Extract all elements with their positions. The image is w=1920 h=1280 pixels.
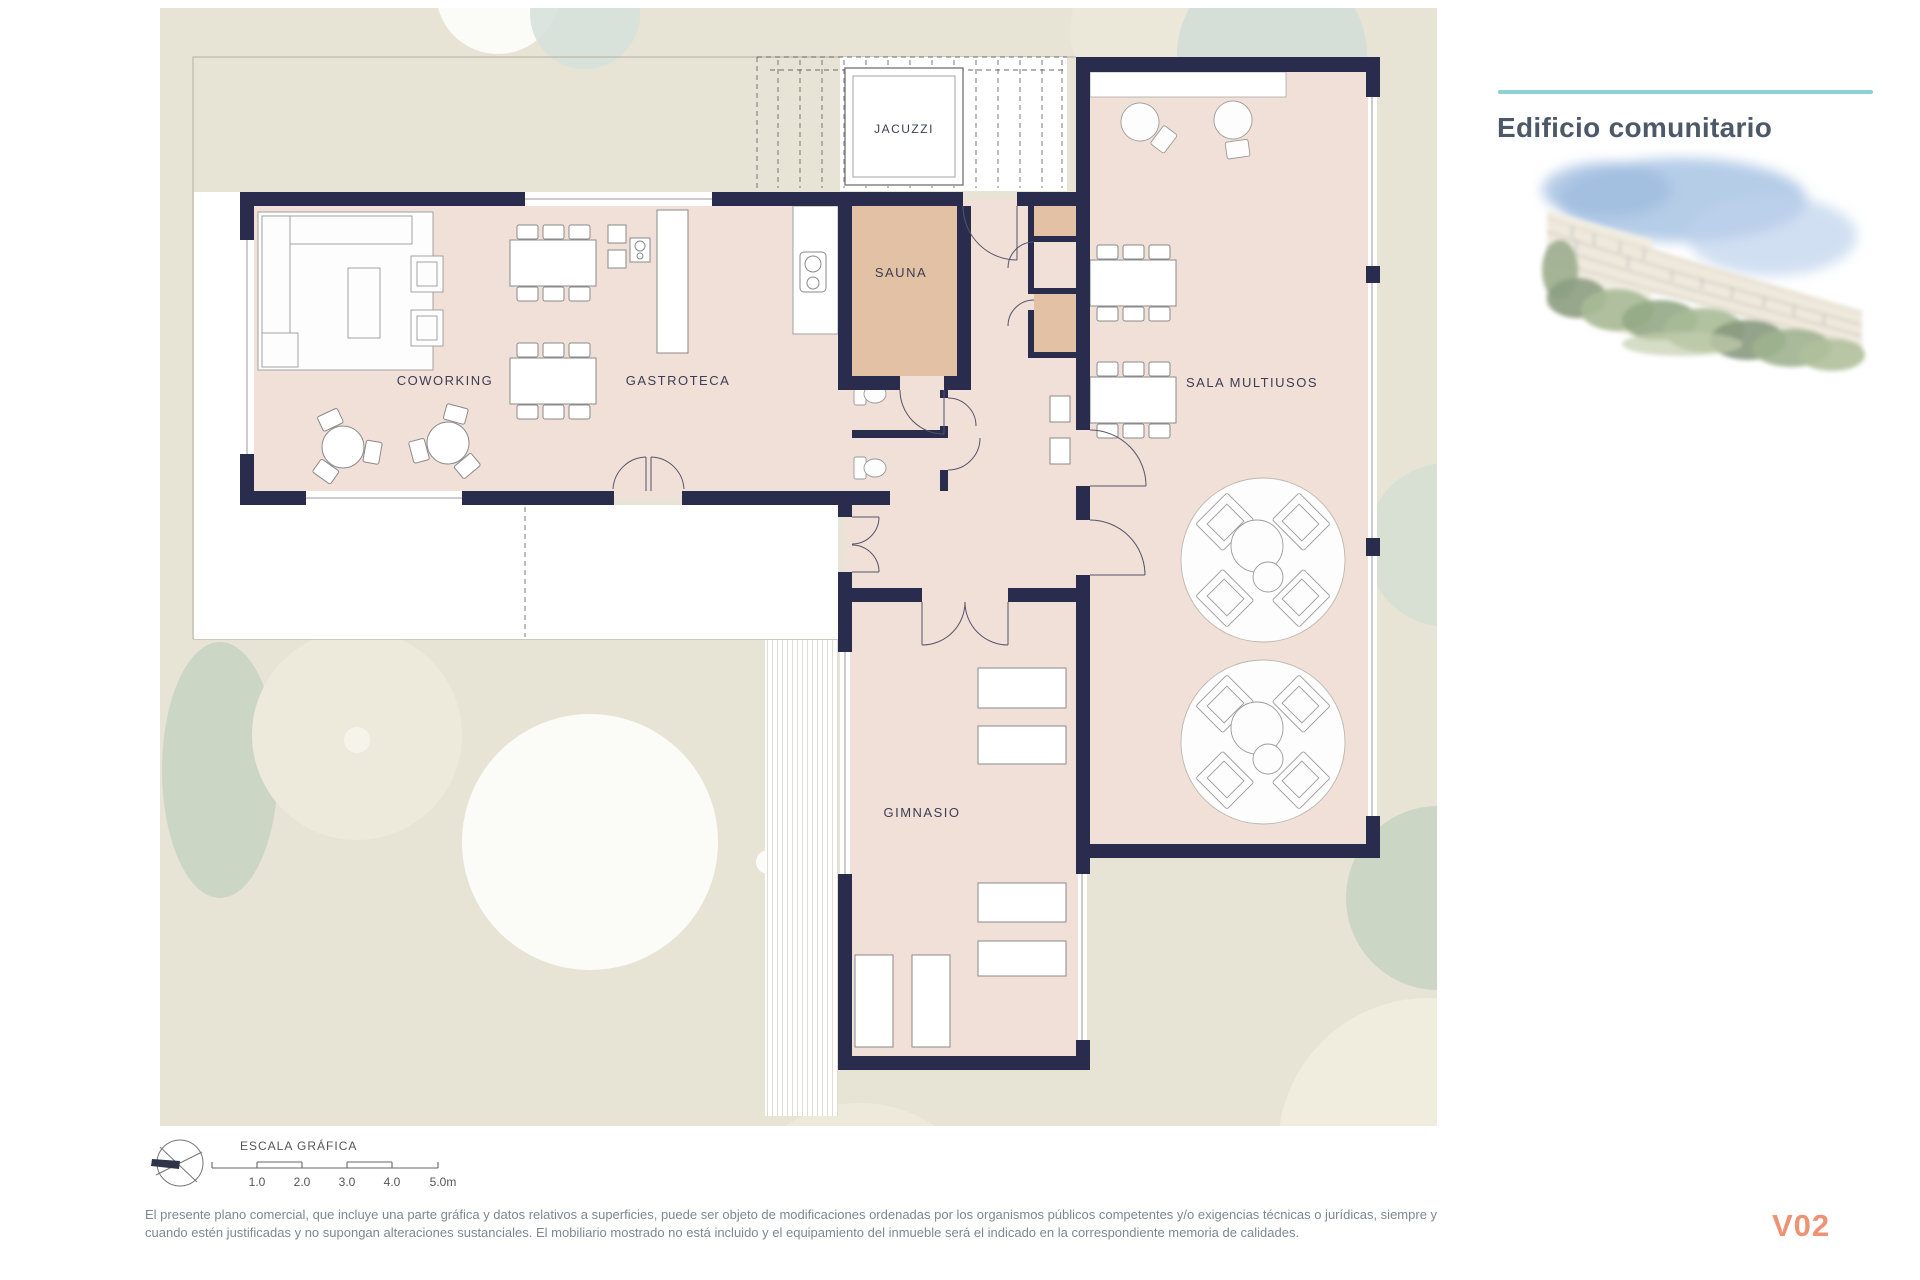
dining-table <box>510 225 596 301</box>
scale-tick-5: 5.0m <box>430 1175 457 1189</box>
accent-divider <box>1498 90 1873 94</box>
page: { "header": { "title": "Edificio comunit… <box>0 0 1920 1280</box>
legal-disclaimer-line2: cuando estén justificadas y no supongan … <box>145 1224 1545 1242</box>
legal-disclaimer: El presente plano comercial, que incluye… <box>145 1206 1545 1241</box>
toilet <box>854 457 886 479</box>
room-label-jacuzzi: JACUZZI <box>874 122 934 136</box>
scale-tick-1: 1.0 <box>249 1175 266 1189</box>
building-watercolor-illustration <box>1532 148 1882 393</box>
dining-table <box>1090 245 1176 321</box>
room-label-coworking: COWORKING <box>397 373 494 388</box>
entrance-mat <box>1090 72 1286 97</box>
coworking-sofa-set <box>258 212 443 370</box>
scale-tick-4: 4.0 <box>384 1175 401 1189</box>
sauna-floor <box>852 206 957 376</box>
room-label-sala-multiusos: SALA MULTIUSOS <box>1186 375 1318 390</box>
page-title: Edificio comunitario <box>1497 112 1772 144</box>
room-label-sauna: SAUNA <box>875 265 927 280</box>
scale-title: ESCALA GRÁFICA <box>240 1138 357 1153</box>
scale-ruler <box>212 1162 438 1168</box>
lounge-circle <box>1181 660 1345 824</box>
room-label-gastroteca: GASTROTECA <box>626 373 731 388</box>
dining-table <box>1090 362 1176 438</box>
scale-tick-2: 2.0 <box>294 1175 311 1189</box>
dining-table <box>510 343 596 419</box>
scale-tick-3: 3.0 <box>339 1175 356 1189</box>
legal-disclaimer-line1: El presente plano comercial, que incluye… <box>145 1206 1545 1224</box>
lounge-circle <box>1181 478 1345 642</box>
wood-walkway <box>765 640 838 1116</box>
north-compass-icon <box>151 1140 203 1186</box>
version-badge: V02 <box>1772 1208 1830 1244</box>
scale-bar: ESCALA GRÁFICA 1.0 2.0 3.0 4.0 5.0m <box>151 1138 456 1189</box>
room-label-gimnasio: GIMNASIO <box>883 805 960 820</box>
